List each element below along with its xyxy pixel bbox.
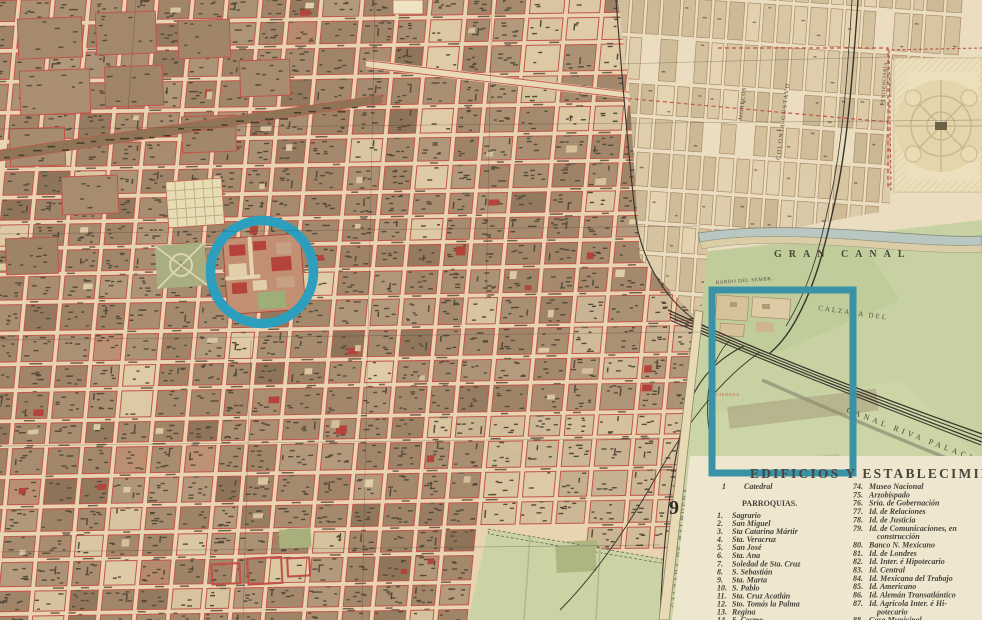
- svg-text:Casa Municipal: Casa Municipal: [869, 616, 922, 620]
- svg-text:9: 9: [669, 497, 679, 519]
- svg-text:Catedral: Catedral: [744, 482, 773, 491]
- svg-text:1: 1: [722, 482, 726, 491]
- svg-text:S. Cosme: S. Cosme: [732, 616, 763, 620]
- svg-text:GRAN CANAL: GRAN CANAL: [774, 249, 912, 260]
- svg-text:14.: 14.: [717, 616, 727, 620]
- svg-text:87.: 87.: [853, 599, 863, 608]
- svg-text:79.: 79.: [853, 524, 863, 533]
- svg-text:88.: 88.: [853, 616, 863, 620]
- svg-text:EDIFICIOS Y ESTABLECIMIENTO: EDIFICIOS Y ESTABLECIMIENTO: [750, 466, 982, 481]
- svg-text:CIENEGA: CIENEGA: [716, 392, 740, 397]
- svg-text:PARROQUIAS.: PARROQUIAS.: [742, 499, 797, 508]
